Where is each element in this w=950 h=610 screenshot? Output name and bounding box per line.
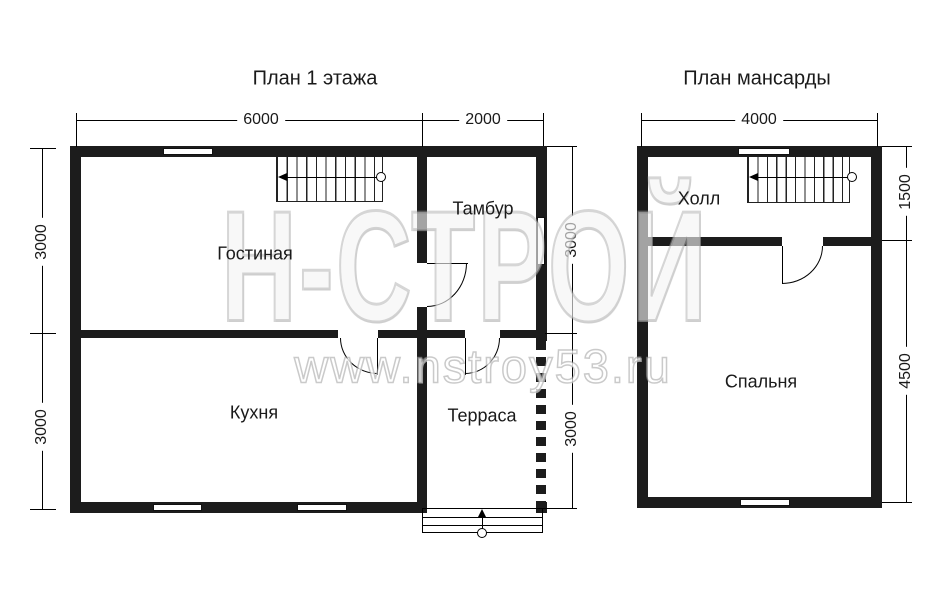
ff-wall-living-kitchen — [81, 330, 338, 338]
attic-stairs-direction-line — [751, 177, 852, 178]
steps-arrowhead — [478, 509, 486, 517]
ff-wall-kitchen-terrace — [417, 338, 427, 502]
ff-dim-width-main: 6000 — [237, 110, 285, 130]
ff-door-vestibule-terrace-arc — [465, 338, 500, 374]
ff-wall-mid-segment — [378, 330, 465, 338]
ff-wall-bottom — [70, 502, 427, 513]
ff-right-dimension-line — [572, 146, 573, 508]
ff-stairs-direction-line — [280, 177, 379, 178]
dim-tick — [30, 509, 56, 510]
ff-dim-right-lower: 3000 — [562, 405, 582, 453]
room-label-living: Гостиная — [217, 244, 293, 265]
ff-window-kitchen-1 — [153, 504, 202, 511]
ff-stairs-arrowhead — [278, 173, 287, 181]
dim-tick — [877, 113, 878, 147]
dim-tick — [547, 146, 577, 147]
attic-wall-hall-bedroom-left — [648, 237, 782, 246]
ff-terrace-open-wall-dashed — [536, 341, 546, 502]
dim-tick — [76, 113, 77, 147]
room-label-bedroom: Спальня — [725, 372, 797, 393]
dim-tick — [545, 333, 577, 334]
ff-window-top — [163, 148, 213, 155]
ff-wall-vestibule-bottom — [500, 330, 536, 338]
attic-stairs — [747, 157, 850, 203]
ff-left-dimension-line — [42, 148, 43, 509]
ff-dim-right-upper: 3000 — [562, 216, 582, 264]
steps-start-circle — [477, 528, 487, 538]
ff-stairs-start-circle — [376, 172, 386, 182]
attic-stairs-arrowhead — [749, 173, 758, 181]
attic-wall-right — [871, 146, 882, 508]
dim-tick — [30, 148, 56, 149]
ff-dim-left-lower: 3000 — [32, 403, 52, 451]
ff-window-kitchen-2 — [297, 504, 347, 511]
dim-tick — [543, 113, 544, 146]
ff-dim-width-vestibule: 2000 — [459, 110, 507, 130]
dim-tick — [882, 146, 912, 147]
attic-dim-right-upper: 1500 — [896, 168, 916, 216]
ff-wall-left — [70, 146, 81, 513]
attic-door-hall-bedroom-leaf — [782, 246, 783, 284]
ff-door-living-vestibule-leaf — [427, 263, 468, 264]
ff-wall-top — [70, 146, 547, 157]
attic-dim-width: 4000 — [735, 110, 783, 130]
attic-window-top — [738, 148, 790, 155]
room-label-hall: Холл — [678, 189, 720, 210]
attic-stairs-start-circle — [847, 172, 857, 182]
ff-door-living-kitchen-leaf — [377, 338, 378, 375]
floorplan-canvas: План 1 этажа План мансарды — [0, 0, 950, 610]
floor1-title: План 1 этажа — [253, 68, 378, 91]
ff-window-vestibule-right — [537, 217, 545, 265]
dim-tick — [422, 113, 423, 147]
ff-door-vestibule-terrace-leaf — [465, 338, 466, 375]
ff-door-living-kitchen-arc — [340, 338, 378, 374]
attic-title: План мансарды — [683, 68, 831, 91]
attic-window-bottom — [740, 499, 790, 506]
ff-stairs — [276, 157, 383, 202]
attic-wall-hall-bedroom-right — [823, 237, 871, 246]
room-label-kitchen: Кухня — [230, 403, 278, 424]
dim-tick — [641, 113, 642, 147]
ff-door-living-vestibule-arc — [427, 263, 467, 307]
ff-wall-vestibule-upper — [417, 157, 427, 263]
room-label-terrace: Терраса — [447, 406, 516, 427]
room-label-vestibule: Тамбур — [452, 199, 513, 220]
dim-tick — [30, 333, 56, 334]
attic-wall-left — [637, 146, 648, 508]
dim-tick — [882, 240, 912, 241]
ff-dim-left-upper: 3000 — [32, 218, 52, 266]
attic-dim-right-lower: 4500 — [896, 347, 916, 395]
dim-tick — [882, 502, 912, 503]
attic-door-hall-bedroom-arc — [782, 246, 823, 284]
